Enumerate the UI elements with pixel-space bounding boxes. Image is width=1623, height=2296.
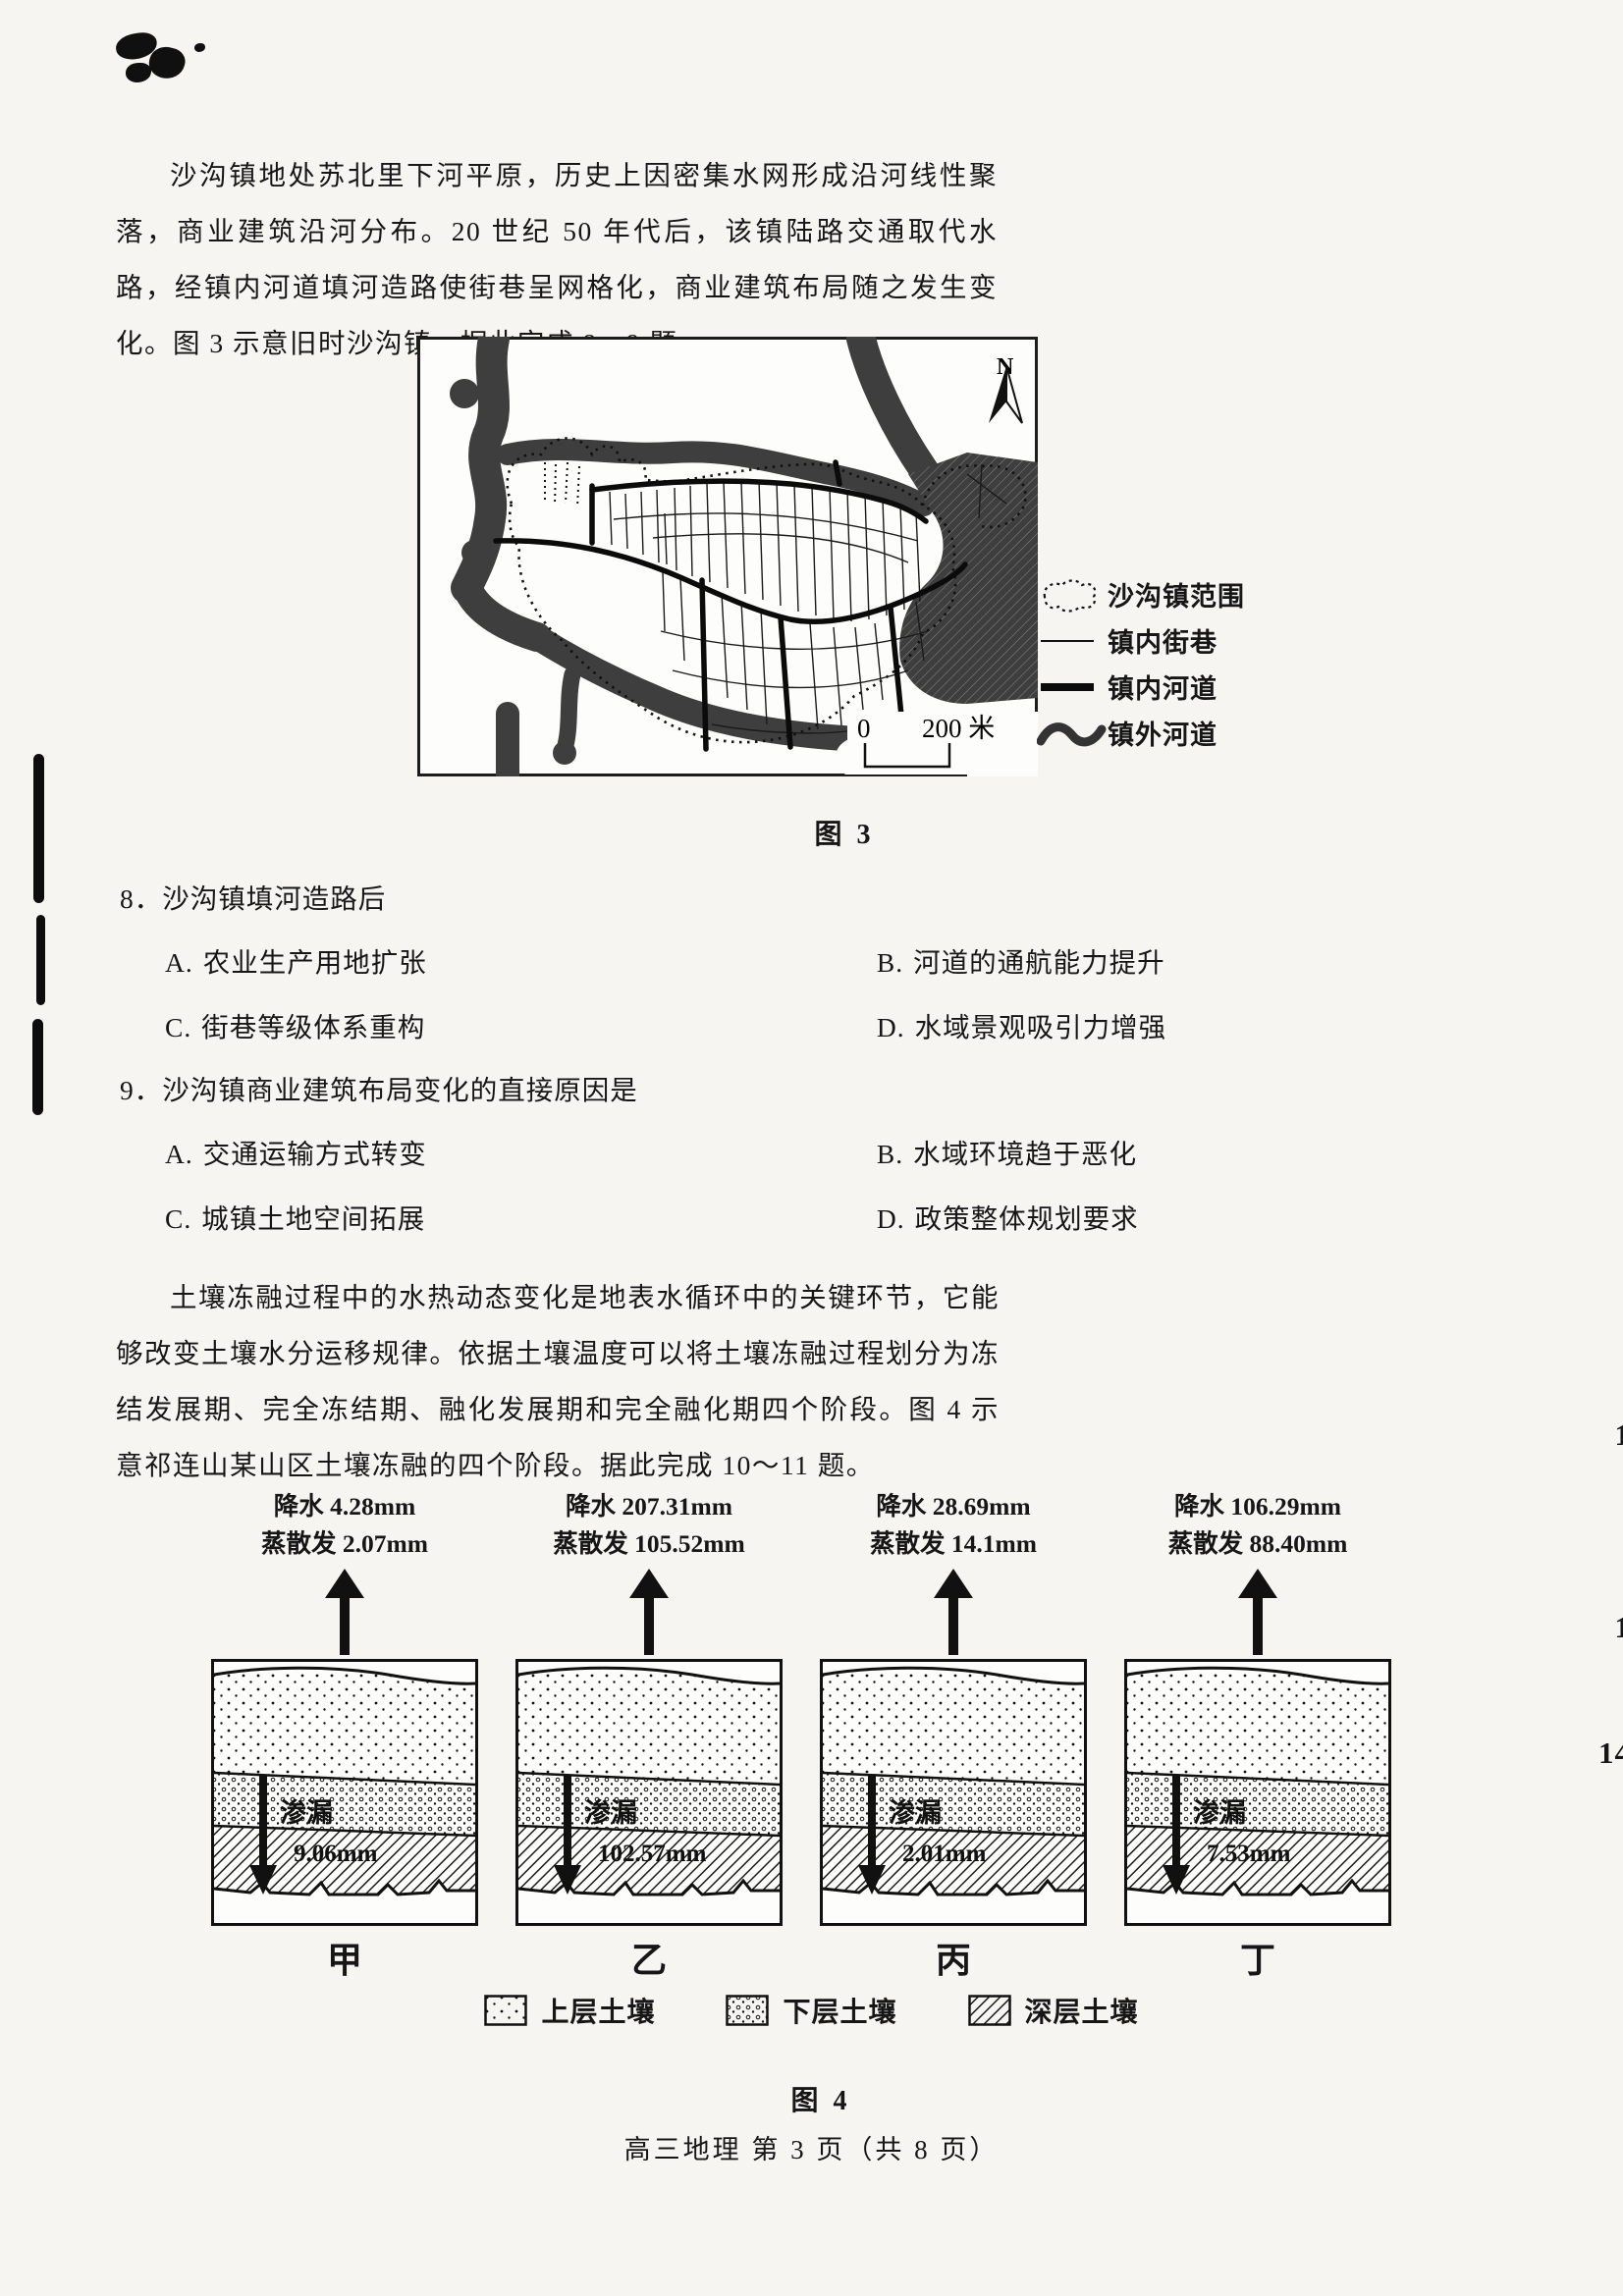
figure4-caption: 图 4: [752, 2079, 890, 2118]
soil-profile-box: 渗漏 2.01mm: [820, 1659, 1087, 1926]
question-9-options-row2: C.城镇土地空间拓展 D.政策整体规划要求: [165, 1197, 1139, 1236]
legend-label: 镇外河道: [1108, 714, 1217, 752]
legend-upper-soil: 上层土壤: [484, 1991, 655, 2030]
evaporation-up-arrow: [325, 1569, 364, 1657]
column-name: 乙: [515, 1932, 783, 1983]
page-footer: 高三地理 第 3 页（共 8 页）: [0, 2128, 1623, 2166]
hatch-swatch: [968, 1995, 1011, 2026]
option-8d: D.水域景观吸引力增强: [877, 1012, 1166, 1042]
soil-column-bing: 降水 28.69mm蒸散发 14.1mm 渗漏 2.01mm 丙: [820, 1488, 1087, 1984]
precip-evap-labels: 降水 4.28mm蒸散发 2.07mm: [182, 1488, 508, 1563]
scan-artifact-blob: [126, 63, 151, 82]
wavy-line-icon: [1037, 716, 1108, 751]
legend-label: 镇内河道: [1108, 667, 1217, 706]
seepage-down-arrow: [1172, 1775, 1180, 1867]
question-8-stem: 8．沙沟镇填河造路后: [120, 877, 386, 916]
soil-column-yi: 降水 207.31mm蒸散发 105.52mm 渗漏 102.57mm 乙: [515, 1488, 783, 1984]
figure3-legend: 沙沟镇范围 镇内街巷 镇内河道 镇外河道: [1037, 571, 1371, 756]
legend-row-town-extent: 沙沟镇范围: [1037, 571, 1371, 617]
option-8a: A.农业生产用地扩张: [165, 940, 869, 980]
exam-page-scan: { "passage1": { "text": "沙沟镇地处苏北里下河平原，历史…: [0, 0, 1623, 2296]
evaporation-up-arrow: [1238, 1569, 1277, 1657]
legend-deep-soil: 深层土壤: [968, 1991, 1139, 2030]
edge-number: 14: [1598, 1735, 1623, 1771]
soil-profile-box: 渗漏 9.06mm: [211, 1659, 478, 1926]
seepage-value: 7.53mm: [1207, 1841, 1291, 1867]
figure3-map: N 0 200 米: [417, 337, 1038, 776]
edge-number: 1: [1615, 1417, 1623, 1453]
dotted-outline-icon: [1037, 575, 1108, 614]
column-name: 甲: [211, 1932, 478, 1983]
seepage-label: 渗漏: [1193, 1797, 1246, 1828]
passage-soil-freeze-thaw: 土壤冻融过程中的水热动态变化是地表水循环中的关键环节，它能够改变土壤水分运移规律…: [116, 1269, 1000, 1493]
legend-row-streets: 镇内街巷: [1037, 617, 1371, 664]
seepage-down-arrow: [564, 1775, 571, 1867]
soil-profile-box: 渗漏 7.53mm: [1124, 1659, 1391, 1926]
seepage-down-arrow: [259, 1775, 267, 1867]
column-name: 丙: [820, 1932, 1087, 1983]
svg-text:200 米: 200 米: [922, 714, 995, 743]
evaporation-up-arrow: [934, 1569, 973, 1657]
question-9-stem: 9．沙沟镇商业建筑布局变化的直接原因是: [120, 1068, 638, 1107]
figure4-legend: 上层土壤 下层土壤 深层土壤: [0, 1991, 1623, 2030]
dots-sparse-swatch: [484, 1995, 527, 2026]
question-8-options-row2: C.街巷等级体系重构 D.水域景观吸引力增强: [165, 1005, 1166, 1044]
soil-profile-box: 渗漏 102.57mm: [515, 1659, 783, 1926]
legend-lower-soil: 下层土壤: [726, 1991, 896, 2030]
thin-line-icon: [1037, 629, 1108, 653]
seepage-value: 9.06mm: [294, 1841, 378, 1867]
svg-text:0: 0: [857, 714, 871, 743]
option-9a: A.交通运输方式转变: [165, 1132, 869, 1171]
scale-bar: 0 200 米: [847, 712, 1038, 774]
question-8-options-row1: A.农业生产用地扩张 B.河道的通航能力提升: [165, 940, 1165, 980]
scan-artifact-streak: [33, 754, 44, 903]
soil-column-jia: 降水 4.28mm蒸散发 2.07mm 渗漏 9.06mm 甲: [211, 1488, 478, 1984]
seepage-label: 渗漏: [280, 1797, 333, 1828]
evaporation-up-arrow: [629, 1569, 669, 1657]
option-9b: B.水域环境趋于恶化: [877, 1139, 1137, 1169]
scan-artifact-streak: [36, 915, 45, 1005]
seepage-down-arrow: [868, 1775, 876, 1867]
seepage-label: 渗漏: [889, 1797, 942, 1828]
soil-column-ding: 降水 106.29mm蒸散发 88.40mm 渗漏 7.53mm 丁: [1124, 1488, 1391, 1984]
option-9c: C.城镇土地空间拓展: [165, 1197, 869, 1236]
seepage-value: 2.01mm: [902, 1841, 987, 1867]
scan-artifact-streak: [32, 1019, 43, 1115]
edge-number: 1: [1615, 1610, 1623, 1645]
dots-dense-swatch: [726, 1995, 769, 2026]
scan-artifact-blob: [194, 43, 205, 52]
option-8b: B.河道的通航能力提升: [877, 947, 1165, 978]
precip-evap-labels: 降水 106.29mm蒸散发 88.40mm: [1095, 1488, 1421, 1563]
figure3-caption: 图 3: [776, 813, 913, 852]
seepage-value: 102.57mm: [598, 1841, 707, 1867]
precip-evap-labels: 降水 28.69mm蒸散发 14.1mm: [790, 1488, 1116, 1563]
legend-label: 沙沟镇范围: [1108, 575, 1245, 614]
town-map-svg: N 0 200 米: [417, 337, 1038, 776]
column-name: 丁: [1124, 1932, 1391, 1983]
question-9-options-row1: A.交通运输方式转变 B.水域环境趋于恶化: [165, 1132, 1137, 1171]
precip-evap-labels: 降水 207.31mm蒸散发 105.52mm: [486, 1488, 812, 1563]
legend-row-inner-river: 镇内河道: [1037, 664, 1371, 710]
option-8c: C.街巷等级体系重构: [165, 1005, 869, 1044]
legend-label: 镇内街巷: [1108, 621, 1217, 660]
legend-row-outer-river: 镇外河道: [1037, 710, 1371, 756]
thick-line-icon: [1037, 675, 1108, 699]
figure4-soil-columns: 降水 4.28mm蒸散发 2.07mm 渗漏 9.06mm 甲 降水 207.3…: [211, 1488, 1584, 1984]
option-9d: D.政策整体规划要求: [877, 1203, 1139, 1234]
seepage-label: 渗漏: [584, 1797, 637, 1828]
